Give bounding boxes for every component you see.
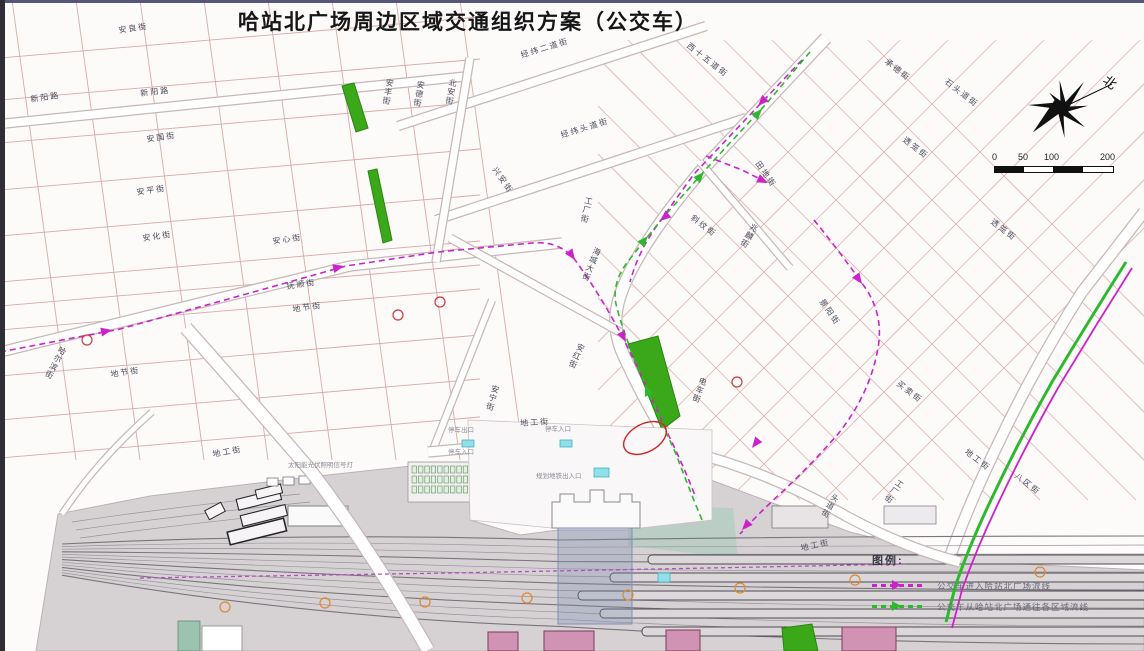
bus-stall — [444, 466, 449, 473]
poi-label: 停车入口 — [545, 427, 571, 434]
station-building-footprint — [552, 490, 640, 528]
legend-item-exit: 公交车从哈站北广场通往各区域流线 — [872, 596, 1142, 617]
poi-label: 停车入口 — [448, 450, 474, 457]
bus-stall — [418, 476, 423, 483]
bus-stall — [412, 476, 417, 483]
bus-stall — [431, 476, 436, 483]
bus-stall — [431, 486, 436, 493]
legend-item-label: 公交车进入哈站北广场流线 — [937, 580, 1051, 592]
bus-stall — [457, 466, 462, 473]
bus-stall — [438, 476, 443, 483]
red-node-marker — [435, 297, 445, 307]
bus-stall — [425, 476, 430, 483]
bus-stall — [463, 476, 468, 483]
bus-stall — [431, 466, 436, 473]
scale-bar-rule — [994, 166, 1114, 173]
bus-stall — [412, 486, 417, 493]
scale-tick-50: 50 — [1018, 152, 1028, 162]
scale-tick-0: 0 — [992, 152, 997, 162]
red-node-marker — [393, 310, 403, 320]
legend-item-label: 公交车从哈站北广场通往各区域流线 — [937, 601, 1089, 613]
bus-stall — [450, 466, 455, 473]
bus-stall — [457, 486, 462, 493]
legend-title: 图例: — [872, 552, 1142, 568]
poi-label: 太阳能光伏照明信号灯 — [288, 463, 353, 470]
scale-bar-labels: 0 50 100 200 — [994, 152, 1124, 164]
route-sample-green-icon — [872, 605, 926, 608]
bus-stall — [425, 486, 430, 493]
legend: 图例: 公交车进入哈站北广场流线 公交车从哈站北广场通往各区域流线 — [872, 552, 1142, 617]
bus-stall — [450, 486, 455, 493]
bus-stall — [418, 466, 423, 473]
page-title: 哈站北广场周边区域交通组织方案（公交车） — [238, 6, 698, 36]
bus-stall — [438, 486, 443, 493]
bus-stall — [412, 466, 417, 473]
poi-label: 规划地铁出入口 — [536, 474, 582, 481]
bus-stall — [450, 476, 455, 483]
scale-tick-200: 200 — [1100, 152, 1115, 162]
bus-stall — [463, 486, 468, 493]
scale-bar: 0 50 100 200 — [994, 152, 1124, 173]
bus-stall — [457, 476, 462, 483]
poi-label: 停车出口 — [448, 428, 474, 435]
plan-map: 哈站北广场周边区域交通组织方案（公交车） 安良街新阳路新阳路安国街安平街安化街安… — [0, 0, 1144, 651]
red-node-marker — [82, 335, 92, 345]
map-top-border — [0, 0, 1144, 3]
route-sample-pink-icon — [872, 584, 926, 587]
bus-stall — [418, 486, 423, 493]
bus-stall — [444, 486, 449, 493]
red-node-marker — [732, 377, 742, 387]
bus-stall — [425, 466, 430, 473]
bus-stalls — [412, 466, 468, 493]
legend-item-enter: 公交车进入哈站北广场流线 — [872, 575, 1142, 596]
station-hall-overlay — [558, 528, 632, 624]
bus-stall — [463, 466, 468, 473]
bus-stall — [438, 466, 443, 473]
scale-tick-100: 100 — [1044, 152, 1059, 162]
map-left-border — [0, 0, 5, 651]
bus-stall — [444, 476, 449, 483]
